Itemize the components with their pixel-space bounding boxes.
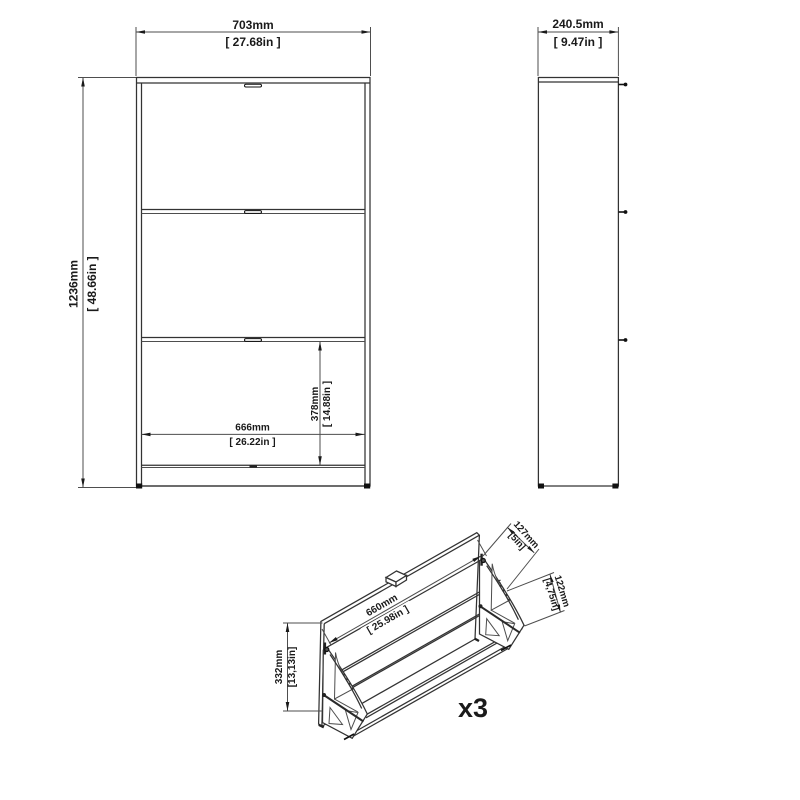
svg-text:703mm: 703mm xyxy=(232,18,273,32)
svg-text:[13,13in]: [13,13in] xyxy=(287,647,298,688)
svg-text:1236mm: 1236mm xyxy=(67,260,81,308)
svg-text:332mm: 332mm xyxy=(274,650,285,685)
svg-text:[ 48.66in ]: [ 48.66in ] xyxy=(85,256,99,311)
svg-text:666mm: 666mm xyxy=(235,423,270,434)
svg-text:378mm: 378mm xyxy=(310,387,321,422)
svg-text:[ 14.88in ]: [ 14.88in ] xyxy=(322,381,333,427)
svg-text:240.5mm: 240.5mm xyxy=(552,17,603,31)
svg-text:[ 27.68in ]: [ 27.68in ] xyxy=(225,35,280,49)
svg-text:[ 9.47in ]: [ 9.47in ] xyxy=(554,35,603,49)
svg-text:[ 26.22in ]: [ 26.22in ] xyxy=(229,437,275,448)
svg-text:x3: x3 xyxy=(458,693,488,723)
